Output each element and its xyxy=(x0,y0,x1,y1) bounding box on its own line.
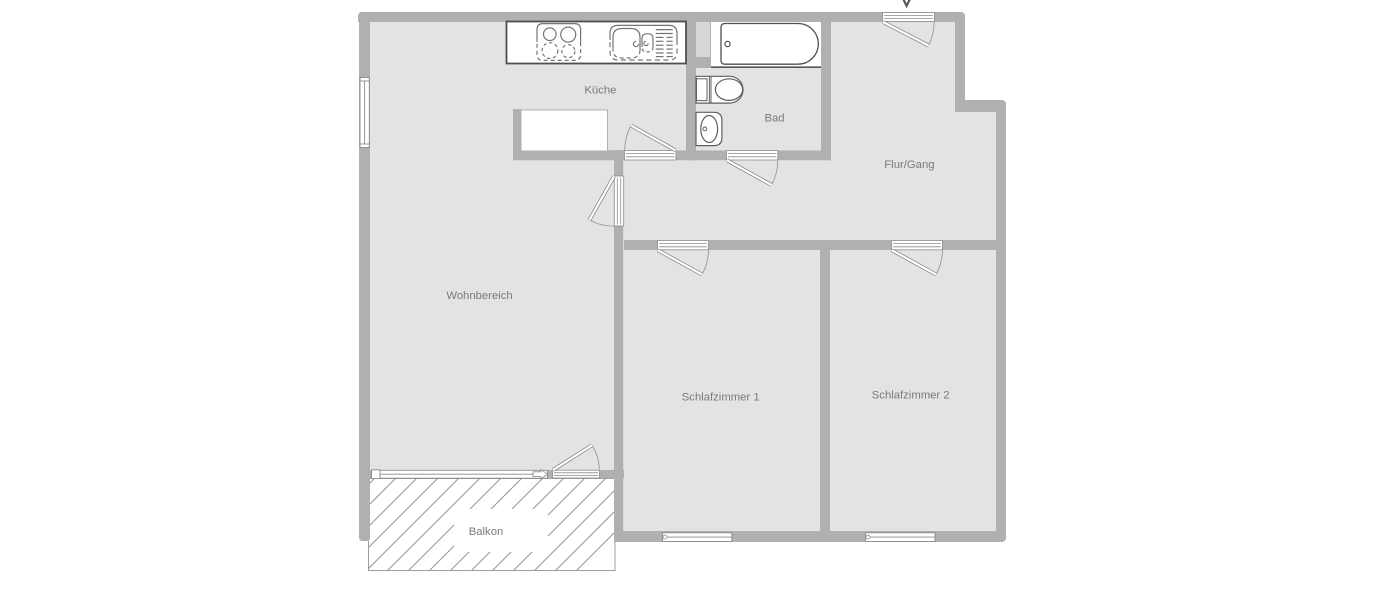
svg-text:Schlafzimmer 2: Schlafzimmer 2 xyxy=(872,390,950,402)
svg-text:Wohnbereich: Wohnbereich xyxy=(446,290,512,302)
svg-text:Bad: Bad xyxy=(764,113,784,125)
svg-text:Küche: Küche xyxy=(584,85,616,97)
svg-text:Flur/Gang: Flur/Gang xyxy=(884,159,934,171)
svg-text:Schlafzimmer 1: Schlafzimmer 1 xyxy=(682,392,760,404)
svg-text:Balkon: Balkon xyxy=(469,526,504,538)
